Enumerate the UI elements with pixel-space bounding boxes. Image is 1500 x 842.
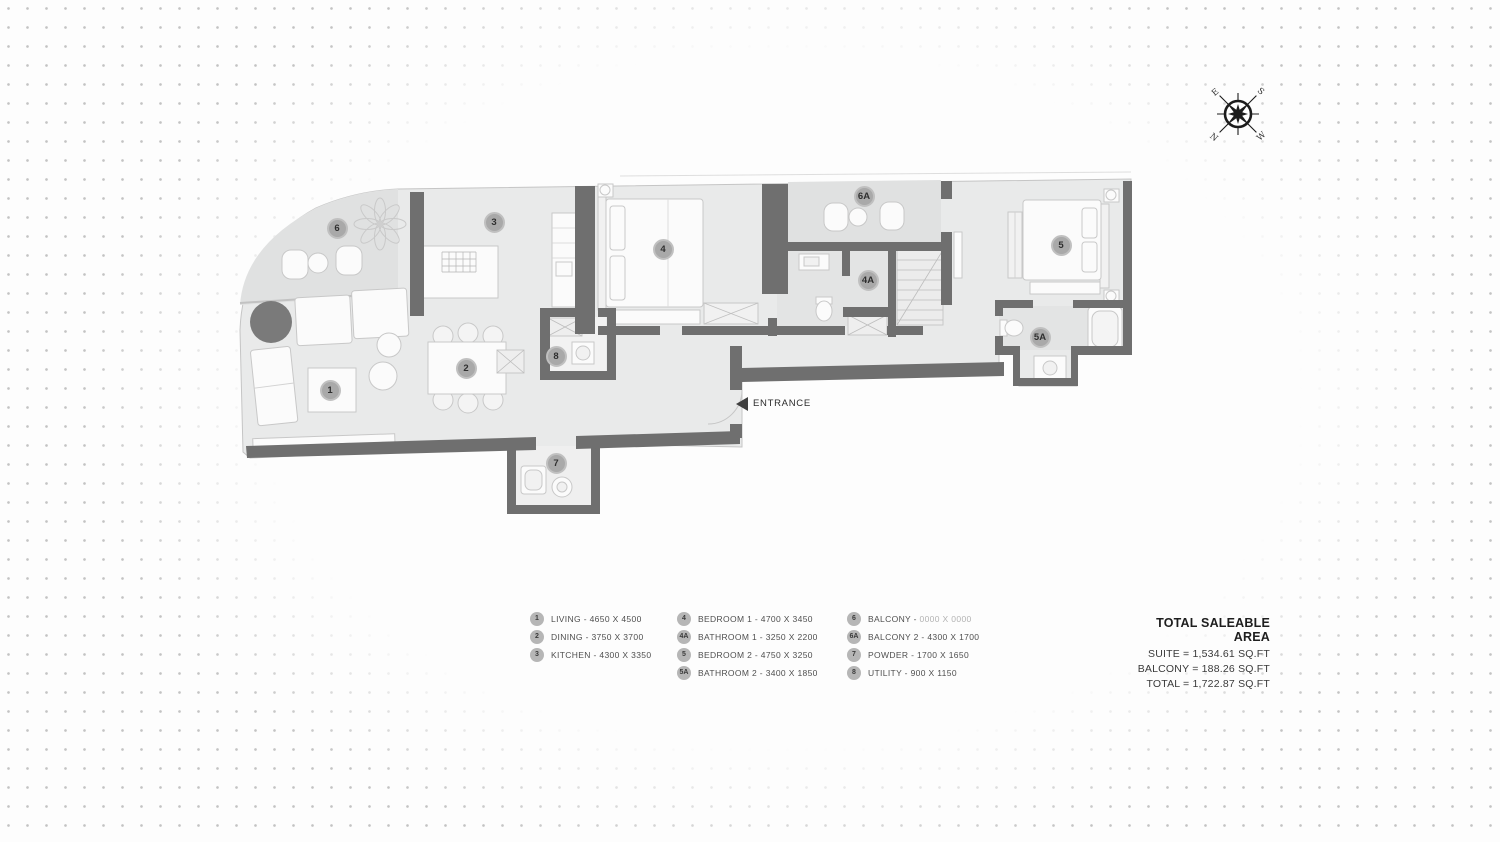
terrace-line xyxy=(620,172,1131,176)
legend-marker: 7 xyxy=(847,648,861,662)
legend-item-bathroom1: 4A BATHROOM 1 - 3250 X 2200 xyxy=(677,628,847,646)
legend-item-balcony: 6 BALCONY - 0000 X 0000 xyxy=(847,610,979,628)
legend-marker: 4A xyxy=(677,630,691,644)
legend-item-bedroom1: 4 BEDROOM 1 - 4700 X 3450 xyxy=(677,610,847,628)
legend-label: BEDROOM 1 - 4700 X 3450 xyxy=(698,614,813,624)
legend-label: BATHROOM 2 - 3400 X 1850 xyxy=(698,668,818,678)
legend-marker: 6A xyxy=(847,630,861,644)
totals-suite-row: SUITE = 1,534.61 SQ.FT xyxy=(1118,647,1270,662)
legend-marker: 4 xyxy=(677,612,691,626)
legend-item-balcony2: 6A BALCONY 2 - 4300 X 1700 xyxy=(847,628,979,646)
legend-column-2: 4 BEDROOM 1 - 4700 X 3450 4A BATHROOM 1 … xyxy=(677,610,847,682)
legend-item-living: 1 LIVING - 4650 X 4500 xyxy=(530,610,677,628)
legend-label: KITCHEN - 4300 X 3350 xyxy=(551,650,651,660)
legend-item-powder: 7 POWDER - 1700 X 1650 xyxy=(847,646,979,664)
legend-label: BEDROOM 2 - 4750 X 3250 xyxy=(698,650,813,660)
legend-marker: 2 xyxy=(530,630,544,644)
round-table xyxy=(250,301,292,343)
legend-label: BATHROOM 1 - 3250 X 2200 xyxy=(698,632,818,642)
total-saleable-area: TOTAL SALEABLE AREA SUITE = 1,534.61 SQ.… xyxy=(1118,616,1270,692)
page: 1 2 3 4 4A 5 5A 6 6A 7 8 ENTRANCE E S W … xyxy=(0,0,1500,842)
legend: 1 LIVING - 4650 X 4500 2 DINING - 3750 X… xyxy=(530,610,979,682)
legend-item-utility: 8 UTILITY - 900 X 1150 xyxy=(847,664,979,682)
legend-marker: 3 xyxy=(530,648,544,662)
legend-item-kitchen: 3 KITCHEN - 4300 X 3350 xyxy=(530,646,677,664)
legend-item-bathroom2: 5A BATHROOM 2 - 3400 X 1850 xyxy=(677,664,847,682)
totals-title: TOTAL SALEABLE AREA xyxy=(1118,616,1270,644)
legend-column-3: 6 BALCONY - 0000 X 0000 6A BALCONY 2 - 4… xyxy=(847,610,979,682)
floor-plan xyxy=(0,0,1500,842)
legend-item-bedroom2: 5 BEDROOM 2 - 4750 X 3250 xyxy=(677,646,847,664)
legend-label: POWDER - 1700 X 1650 xyxy=(868,650,969,660)
legend-column-1: 1 LIVING - 4650 X 4500 2 DINING - 3750 X… xyxy=(530,610,677,682)
legend-label: BALCONY - 0000 X 0000 xyxy=(868,614,972,624)
legend-marker: 5A xyxy=(677,666,691,680)
totals-balcony-row: BALCONY = 188.26 SQ.FT xyxy=(1118,662,1270,677)
legend-marker: 8 xyxy=(847,666,861,680)
legend-label: LIVING - 4650 X 4500 xyxy=(551,614,642,624)
legend-marker: 5 xyxy=(677,648,691,662)
legend-label: BALCONY 2 - 4300 X 1700 xyxy=(868,632,979,642)
totals-total-row: TOTAL = 1,722.87 SQ.FT xyxy=(1118,677,1270,692)
legend-marker: 6 xyxy=(847,612,861,626)
legend-label: DINING - 3750 X 3700 xyxy=(551,632,644,642)
legend-item-dining: 2 DINING - 3750 X 3700 xyxy=(530,628,677,646)
legend-label: UTILITY - 900 X 1150 xyxy=(868,668,957,678)
legend-marker: 1 xyxy=(530,612,544,626)
